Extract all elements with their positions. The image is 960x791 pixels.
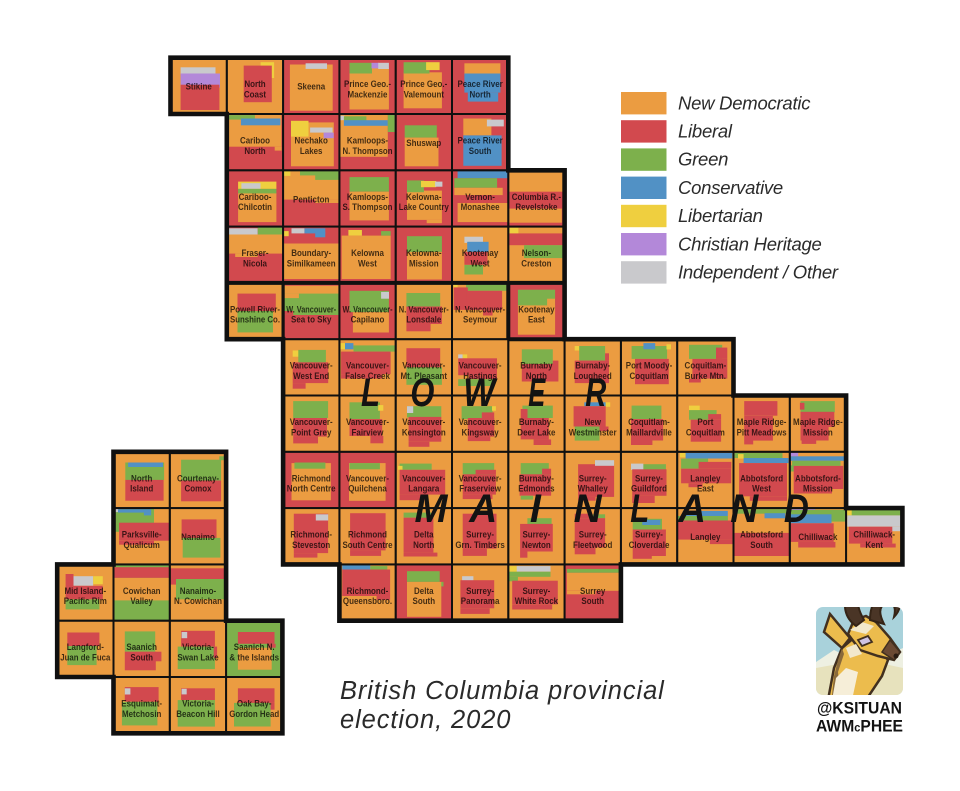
svg-text:Newton: Newton	[522, 540, 551, 551]
svg-text:Langley: Langley	[690, 532, 721, 543]
svg-text:Gordon Head: Gordon Head	[229, 709, 279, 720]
svg-text:Coquitlam: Coquitlam	[630, 371, 669, 382]
svg-text:Shuswap: Shuswap	[406, 138, 441, 149]
svg-text:Capilano: Capilano	[351, 315, 385, 326]
svg-text:Lonsdale: Lonsdale	[406, 315, 441, 326]
svg-text:Chilcotin: Chilcotin	[238, 202, 272, 213]
svg-text:L: L	[361, 371, 380, 415]
svg-text:E: E	[528, 371, 546, 415]
svg-text:I: I	[530, 487, 542, 531]
svg-text:Lakes: Lakes	[300, 146, 323, 157]
svg-text:Chilliwack: Chilliwack	[798, 532, 838, 543]
svg-text:N. Thompson: N. Thompson	[343, 146, 393, 157]
svg-text:South: South	[581, 596, 604, 607]
svg-text:South: South	[413, 596, 436, 607]
svg-text:Conservative: Conservative	[678, 177, 783, 198]
svg-text:Penticton: Penticton	[293, 194, 330, 205]
svg-text:Grn. Timbers: Grn. Timbers	[455, 540, 505, 551]
svg-text:R: R	[585, 371, 606, 415]
svg-text:East: East	[528, 315, 546, 326]
svg-text:Westminster: Westminster	[569, 427, 617, 438]
svg-text:O: O	[410, 371, 434, 415]
svg-text:M: M	[415, 487, 450, 531]
svg-text:Similkameen: Similkameen	[287, 258, 336, 269]
svg-text:Cloverdale: Cloverdale	[629, 540, 670, 551]
svg-text:Libertarian: Libertarian	[678, 205, 763, 226]
svg-text:Metchosin: Metchosin	[122, 709, 162, 720]
svg-text:& the Islands: & the Islands	[229, 653, 279, 664]
svg-text:W: W	[463, 371, 498, 415]
svg-text:North Centre: North Centre	[287, 484, 336, 495]
svg-text:Mission: Mission	[803, 427, 833, 438]
svg-text:Independent / Other: Independent / Other	[678, 262, 839, 283]
svg-text:Pitt Meadows: Pitt Meadows	[737, 427, 787, 438]
svg-text:South: South	[469, 146, 492, 157]
svg-text:New Democratic: New Democratic	[678, 92, 811, 113]
svg-text:Swan Lake: Swan Lake	[177, 653, 218, 664]
svg-text:Lake Country: Lake Country	[399, 202, 450, 213]
svg-text:British Columbia provincial: British Columbia provincial	[340, 677, 665, 705]
svg-text:West: West	[471, 258, 491, 269]
svg-text:Comox: Comox	[185, 484, 213, 495]
svg-text:Quilchena: Quilchena	[348, 484, 387, 495]
svg-text:S. Thompson: S. Thompson	[343, 202, 393, 213]
svg-text:Steveston: Steveston	[292, 540, 330, 551]
svg-text:Kingsway: Kingsway	[461, 427, 499, 438]
svg-text:Stikine: Stikine	[186, 82, 212, 93]
svg-text:Qualicum: Qualicum	[124, 540, 160, 551]
svg-text:Juan de Fuca: Juan de Fuca	[60, 653, 111, 664]
svg-text:Queensboro.: Queensboro.	[343, 596, 392, 607]
svg-text:Burke Mtn.: Burke Mtn.	[685, 371, 726, 382]
svg-text:A: A	[468, 487, 497, 531]
svg-text:Fleetwood: Fleetwood	[573, 540, 613, 551]
svg-text:Kensington: Kensington	[402, 427, 446, 438]
svg-text:South: South	[130, 653, 153, 664]
svg-text:Green: Green	[678, 149, 728, 170]
svg-text:Mission: Mission	[409, 258, 439, 269]
svg-text:D: D	[784, 487, 809, 531]
svg-text:Maillardville: Maillardville	[626, 427, 672, 438]
svg-text:North: North	[469, 90, 490, 101]
svg-text:Mackenzie: Mackenzie	[348, 90, 388, 101]
svg-text:Beacon Hill: Beacon Hill	[176, 709, 220, 720]
svg-text:election, 2020: election, 2020	[340, 706, 511, 734]
svg-text:N. Cowichan: N. Cowichan	[174, 596, 222, 607]
svg-text:Sea to Sky: Sea to Sky	[291, 315, 332, 326]
svg-text:South: South	[750, 540, 773, 551]
svg-text:Point Grey: Point Grey	[291, 427, 332, 438]
svg-text:Deer Lake: Deer Lake	[517, 427, 555, 438]
svg-text:Valley: Valley	[130, 596, 153, 607]
svg-text:Coast: Coast	[244, 90, 267, 101]
svg-text:Skeena: Skeena	[297, 82, 326, 93]
svg-text:Seymour: Seymour	[463, 315, 497, 326]
svg-text:A: A	[677, 487, 706, 531]
svg-text:West: West	[358, 258, 378, 269]
svg-text:AWMcPHEE: AWMcPHEE	[816, 717, 903, 736]
svg-text:North: North	[244, 146, 265, 157]
svg-text:N: N	[574, 487, 603, 531]
svg-text:Fairview: Fairview	[352, 427, 384, 438]
svg-text:Monashee: Monashee	[461, 202, 500, 213]
svg-text:Island: Island	[130, 484, 153, 495]
svg-text:West End: West End	[293, 371, 329, 382]
svg-text:Valemount: Valemount	[404, 90, 445, 101]
svg-text:North: North	[413, 540, 434, 551]
svg-text:Revelstoke: Revelstoke	[515, 202, 557, 213]
svg-text:Kent: Kent	[865, 540, 883, 551]
svg-text:Nicola: Nicola	[243, 258, 268, 269]
svg-text:South Centre: South Centre	[343, 540, 393, 551]
svg-text:L: L	[630, 487, 649, 531]
svg-text:Christian Heritage: Christian Heritage	[678, 233, 822, 254]
svg-text:@KSITUAN: @KSITUAN	[817, 699, 902, 718]
svg-text:Coquitlam: Coquitlam	[686, 427, 725, 438]
svg-text:Pacific Rim: Pacific Rim	[64, 596, 107, 607]
svg-text:Sunshine Co.: Sunshine Co.	[230, 315, 280, 326]
svg-text:Liberal: Liberal	[678, 121, 733, 142]
svg-text:Nanaimo: Nanaimo	[181, 532, 215, 543]
svg-text:Panorama: Panorama	[461, 596, 500, 607]
svg-text:White Rock: White Rock	[515, 596, 559, 607]
svg-text:N: N	[730, 487, 759, 531]
svg-text:Creston: Creston	[521, 258, 551, 269]
